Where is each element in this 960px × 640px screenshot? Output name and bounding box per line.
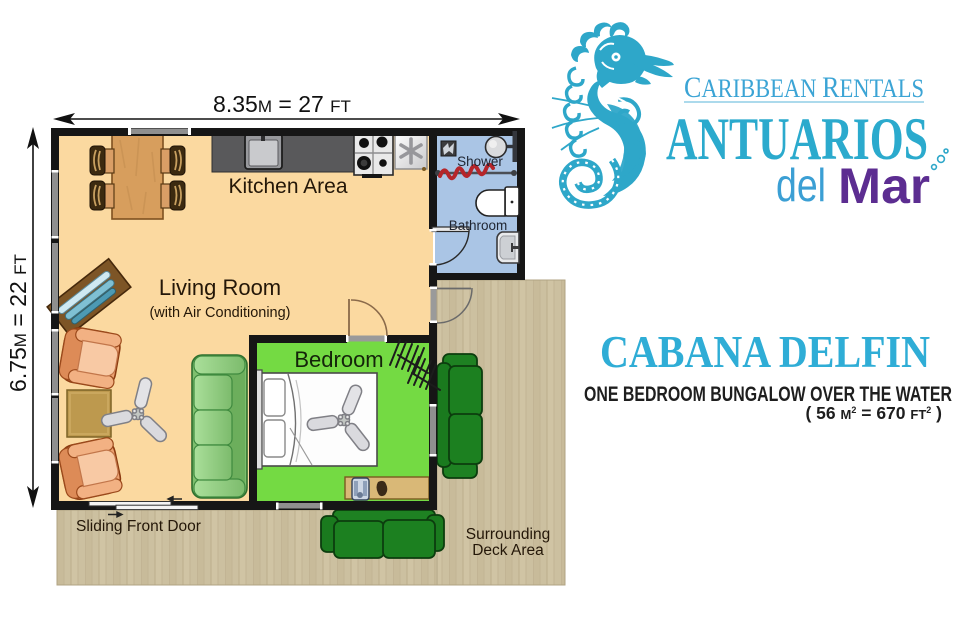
svg-text:Shower: Shower <box>457 154 503 169</box>
svg-text:Deck Area: Deck Area <box>472 542 544 559</box>
svg-text:Bathroom: Bathroom <box>449 218 508 233</box>
svg-text:del: del <box>776 159 826 211</box>
svg-text:Mar: Mar <box>838 158 930 214</box>
svg-text:( 56 M2 = 670 FT2 ): ( 56 M2 = 670 FT2 ) <box>805 403 942 423</box>
svg-text:CABANA DELFIN: CABANA DELFIN <box>600 326 930 377</box>
svg-text:CARIBBEAN RENTALS: CARIBBEAN RENTALS <box>684 71 924 104</box>
svg-text:Kitchen Area: Kitchen Area <box>228 175 347 198</box>
svg-text:Surrounding: Surrounding <box>466 526 550 543</box>
svg-text:Living Room: Living Room <box>159 275 281 300</box>
svg-text:Bedroom: Bedroom <box>294 347 383 372</box>
svg-text:6.75M = 22 FT: 6.75M = 22 FT <box>5 254 31 392</box>
svg-text:8.35M = 27 FT: 8.35M = 27 FT <box>213 91 351 117</box>
svg-text:Sliding Front Door: Sliding Front Door <box>76 518 201 535</box>
svg-text:(with Air Conditioning): (with Air Conditioning) <box>149 305 290 321</box>
